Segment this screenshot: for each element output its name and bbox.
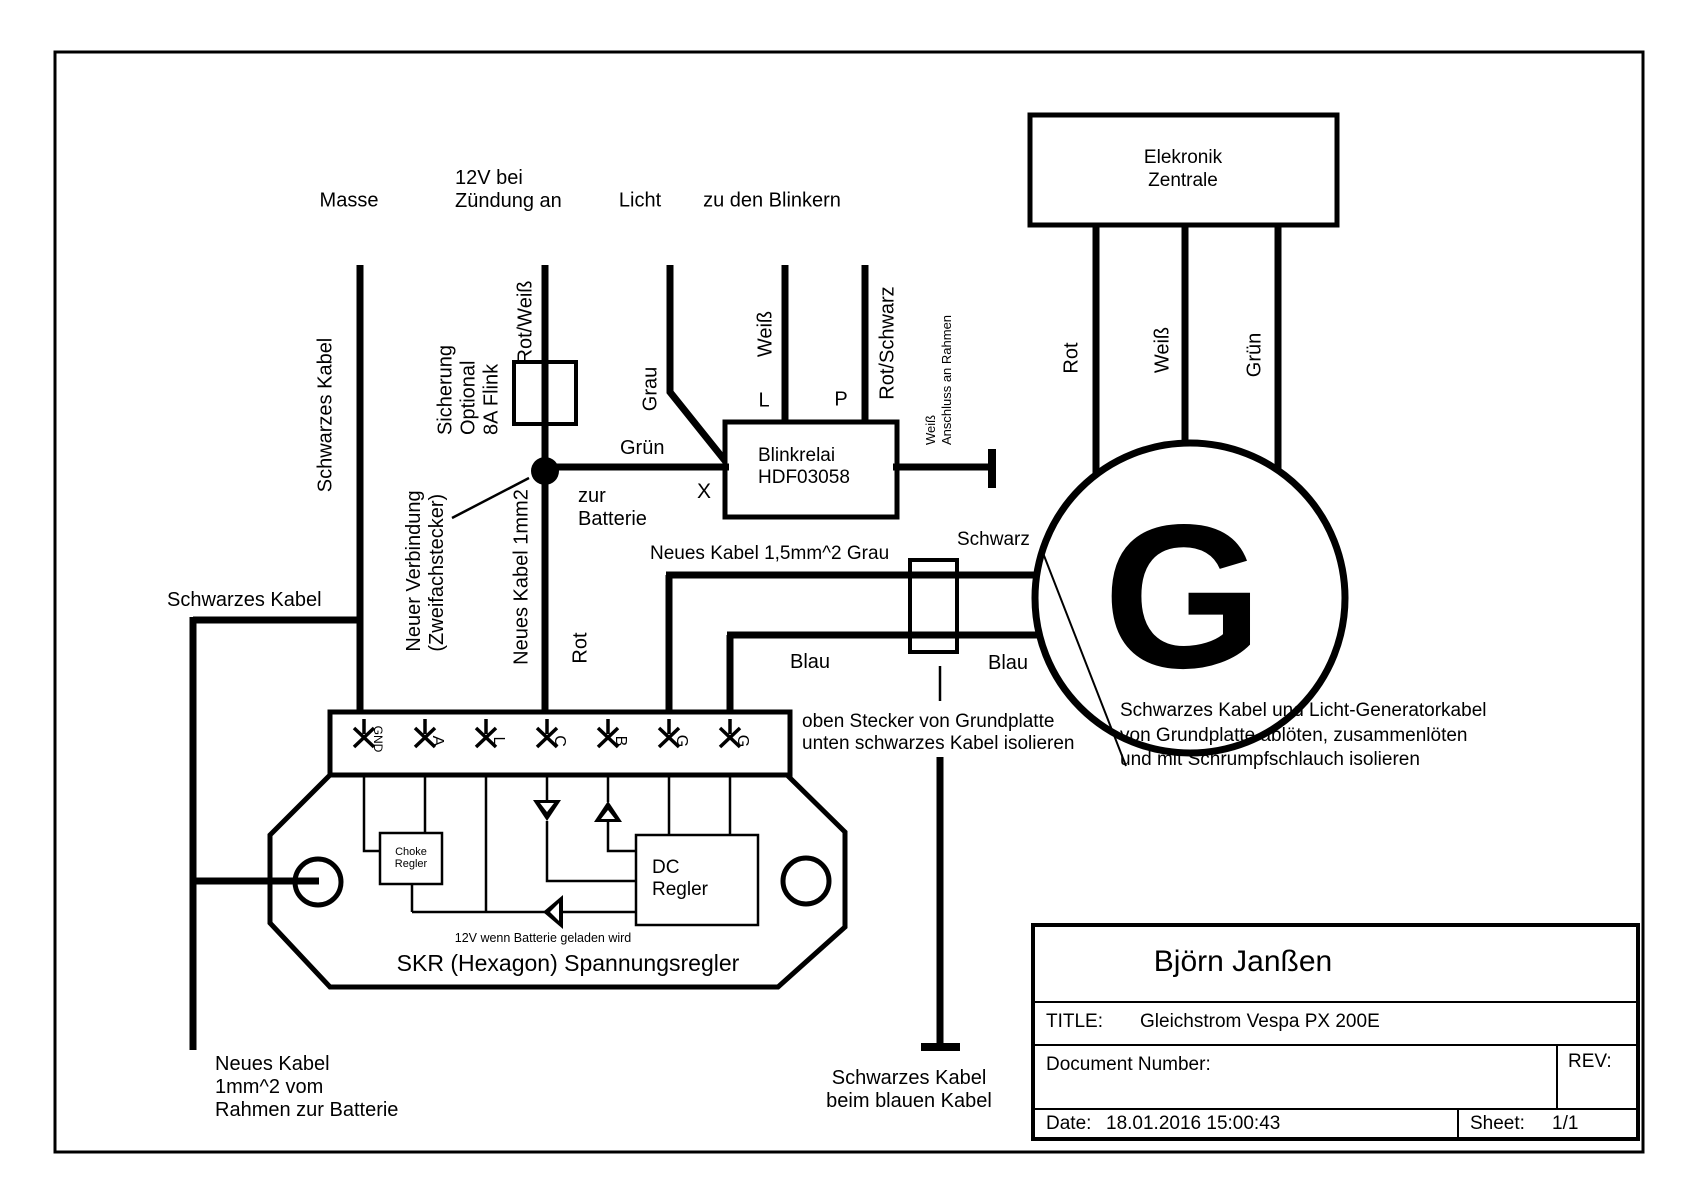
schwarzes-kabel-vert-label: Schwarzes Kabel [315,338,338,493]
generator-letter: G [1103,479,1262,715]
terminal-label-b: B [611,736,629,747]
rot-weiss-label: Rot/Weiß [515,281,538,364]
stecker-note-line1: oben Stecker von Grundplatte [802,711,1075,733]
title-value: Gleichstrom Vespa PX 200E [1140,1011,1380,1033]
neuer-verbindung-label: Neuer Verbindung (Zweifachstecker) [403,490,449,651]
g-internal-wires [669,775,730,836]
solder-note-line3: und mit Schrumpfschlauch isolieren [1120,748,1486,773]
zentrale-gruen-label: Grün [1244,333,1267,377]
fuse-line1: Sicherung [435,345,458,435]
wire-licht-grau [670,265,726,462]
rot-label: Rot [570,632,593,663]
anschluss-label: Weiß Anschluss an Rahmen [923,315,956,445]
neues-kabel-1mm2-label: Neues Kabel 1mm2 [511,489,534,665]
solder-note-line2: von Grundplatte ablöten, zusammenlöten [1120,724,1486,749]
zur-batterie-line1: zur [578,485,647,508]
schematic-sheet: Masse 12V bei Zündung an Licht zu den Bl… [0,0,1698,1200]
gruen-label: Grün [620,437,664,460]
choke-line1: Choke [395,846,427,858]
grau-label: Grau [640,367,663,411]
anschluss-line2: Anschluss an Rahmen [939,315,955,445]
ignition-line2: Zündung an [455,190,562,213]
doc-number-label: Document Number: [1046,1054,1211,1076]
choke-line2: Regler [395,858,427,870]
schwarzes-kabel-horiz-label: Schwarzes Kabel [167,589,322,612]
solder-note-line1: Schwarzes Kabel und Licht-Generatorkabel [1120,699,1486,724]
fuse-line3: 8A Flink [481,345,504,435]
terminal-label-l: L [489,737,507,746]
fuse-label: Sicherung Optional 8A Flink [435,345,504,435]
zur-batterie-label: zur Batterie [578,485,647,531]
schwarz-blau-line1: Schwarzes Kabel [826,1067,992,1090]
licht-label: Licht [619,190,661,213]
masse-label: Masse [320,190,379,213]
junction-dot [531,457,559,485]
battery-note: Neues Kabel 1mm^2 vom Rahmen zur Batteri… [215,1053,398,1122]
title-label: TITLE: [1046,1011,1103,1033]
neuer-verbindung-line1: Neuer Verbindung [403,490,426,651]
ignition-label: 12V bei Zündung an [455,167,562,213]
relay-l-label: L [758,390,769,413]
zentrale-rot-label: Rot [1061,342,1084,373]
battery-note-line2: 1mm^2 vom [215,1076,398,1099]
relay-model: HDF03058 [758,467,850,489]
neuer-verbindung-line2: (Zweifachstecker) [426,490,449,651]
date-label: Date: [1046,1113,1091,1135]
gnd-internal-wire [364,775,381,851]
schwarz-blau-line2: beim blauen Kabel [826,1090,992,1113]
fuse-line2: Optional [458,345,481,435]
relay-x-label: X [697,480,711,504]
zur-batterie-line2: Batterie [578,508,647,531]
titleblock-author: Björn Janßen [1154,945,1332,980]
schwarz-label: Schwarz [957,529,1030,551]
regulator-name: SKR (Hexagon) Spannungsregler [397,950,740,976]
choke-regler-text: Choke Regler [395,846,427,870]
blinker-label: zu den Blinkern [703,190,841,213]
weiss-blinker-label: Weiß [755,311,778,357]
c-internal-wire [547,775,637,881]
grau-kabel-label: Neues Kabel 1,5mm^2 Grau [650,543,889,565]
terminal-label-c: C [550,735,568,747]
relay-p-label: P [834,389,847,412]
dc-regler-text: DC Regler [652,857,708,901]
blau-right-label: Blau [988,652,1028,675]
zentrale-weiss-label: Weiß [1152,327,1175,373]
anschluss-line1: Weiß [923,315,939,445]
stecker-note: oben Stecker von Grundplatte unten schwa… [802,711,1075,755]
stecker-note-line2: unten schwarzes Kabel isolieren [802,733,1075,755]
blau-left-label: Blau [790,651,830,674]
mount-hole-right [783,858,829,904]
sheet-value: 1/1 [1552,1113,1578,1135]
zentrale-name-line2: Zentrale [1144,170,1222,193]
rev-label: REV: [1568,1051,1612,1073]
relay-name: Blinkrelai [758,445,850,467]
battery-note-line1: Neues Kabel [215,1053,398,1076]
sheet-label: Sheet: [1470,1113,1525,1135]
regulator-note: 12V wenn Batterie geladen wird [455,931,632,945]
battery-note-line3: Rahmen zur Batterie [215,1099,398,1122]
solder-note: Schwarzes Kabel und Licht-Generatorkabel… [1120,699,1486,773]
terminal-label-gnd: GND [370,726,384,753]
rot-schwarz-label: Rot/Schwarz [877,286,900,399]
terminal-label-a: A [428,736,446,747]
zentrale-text: Elekronik Zentrale [1144,147,1222,193]
zentrale-name-line1: Elekronik [1144,147,1222,170]
schwarz-blau-note: Schwarzes Kabel beim blauen Kabel [826,1067,992,1113]
dc-line2: Regler [652,879,708,901]
ignition-line1: 12V bei [455,167,562,190]
relay-text: Blinkrelai HDF03058 [758,445,850,489]
terminal-label-g2: G [733,735,751,747]
terminal-label-g1: G [672,735,690,747]
date-value: 18.01.2016 15:00:43 [1106,1113,1280,1135]
dc-line1: DC [652,857,708,879]
bottom-internal-wire [412,883,637,912]
